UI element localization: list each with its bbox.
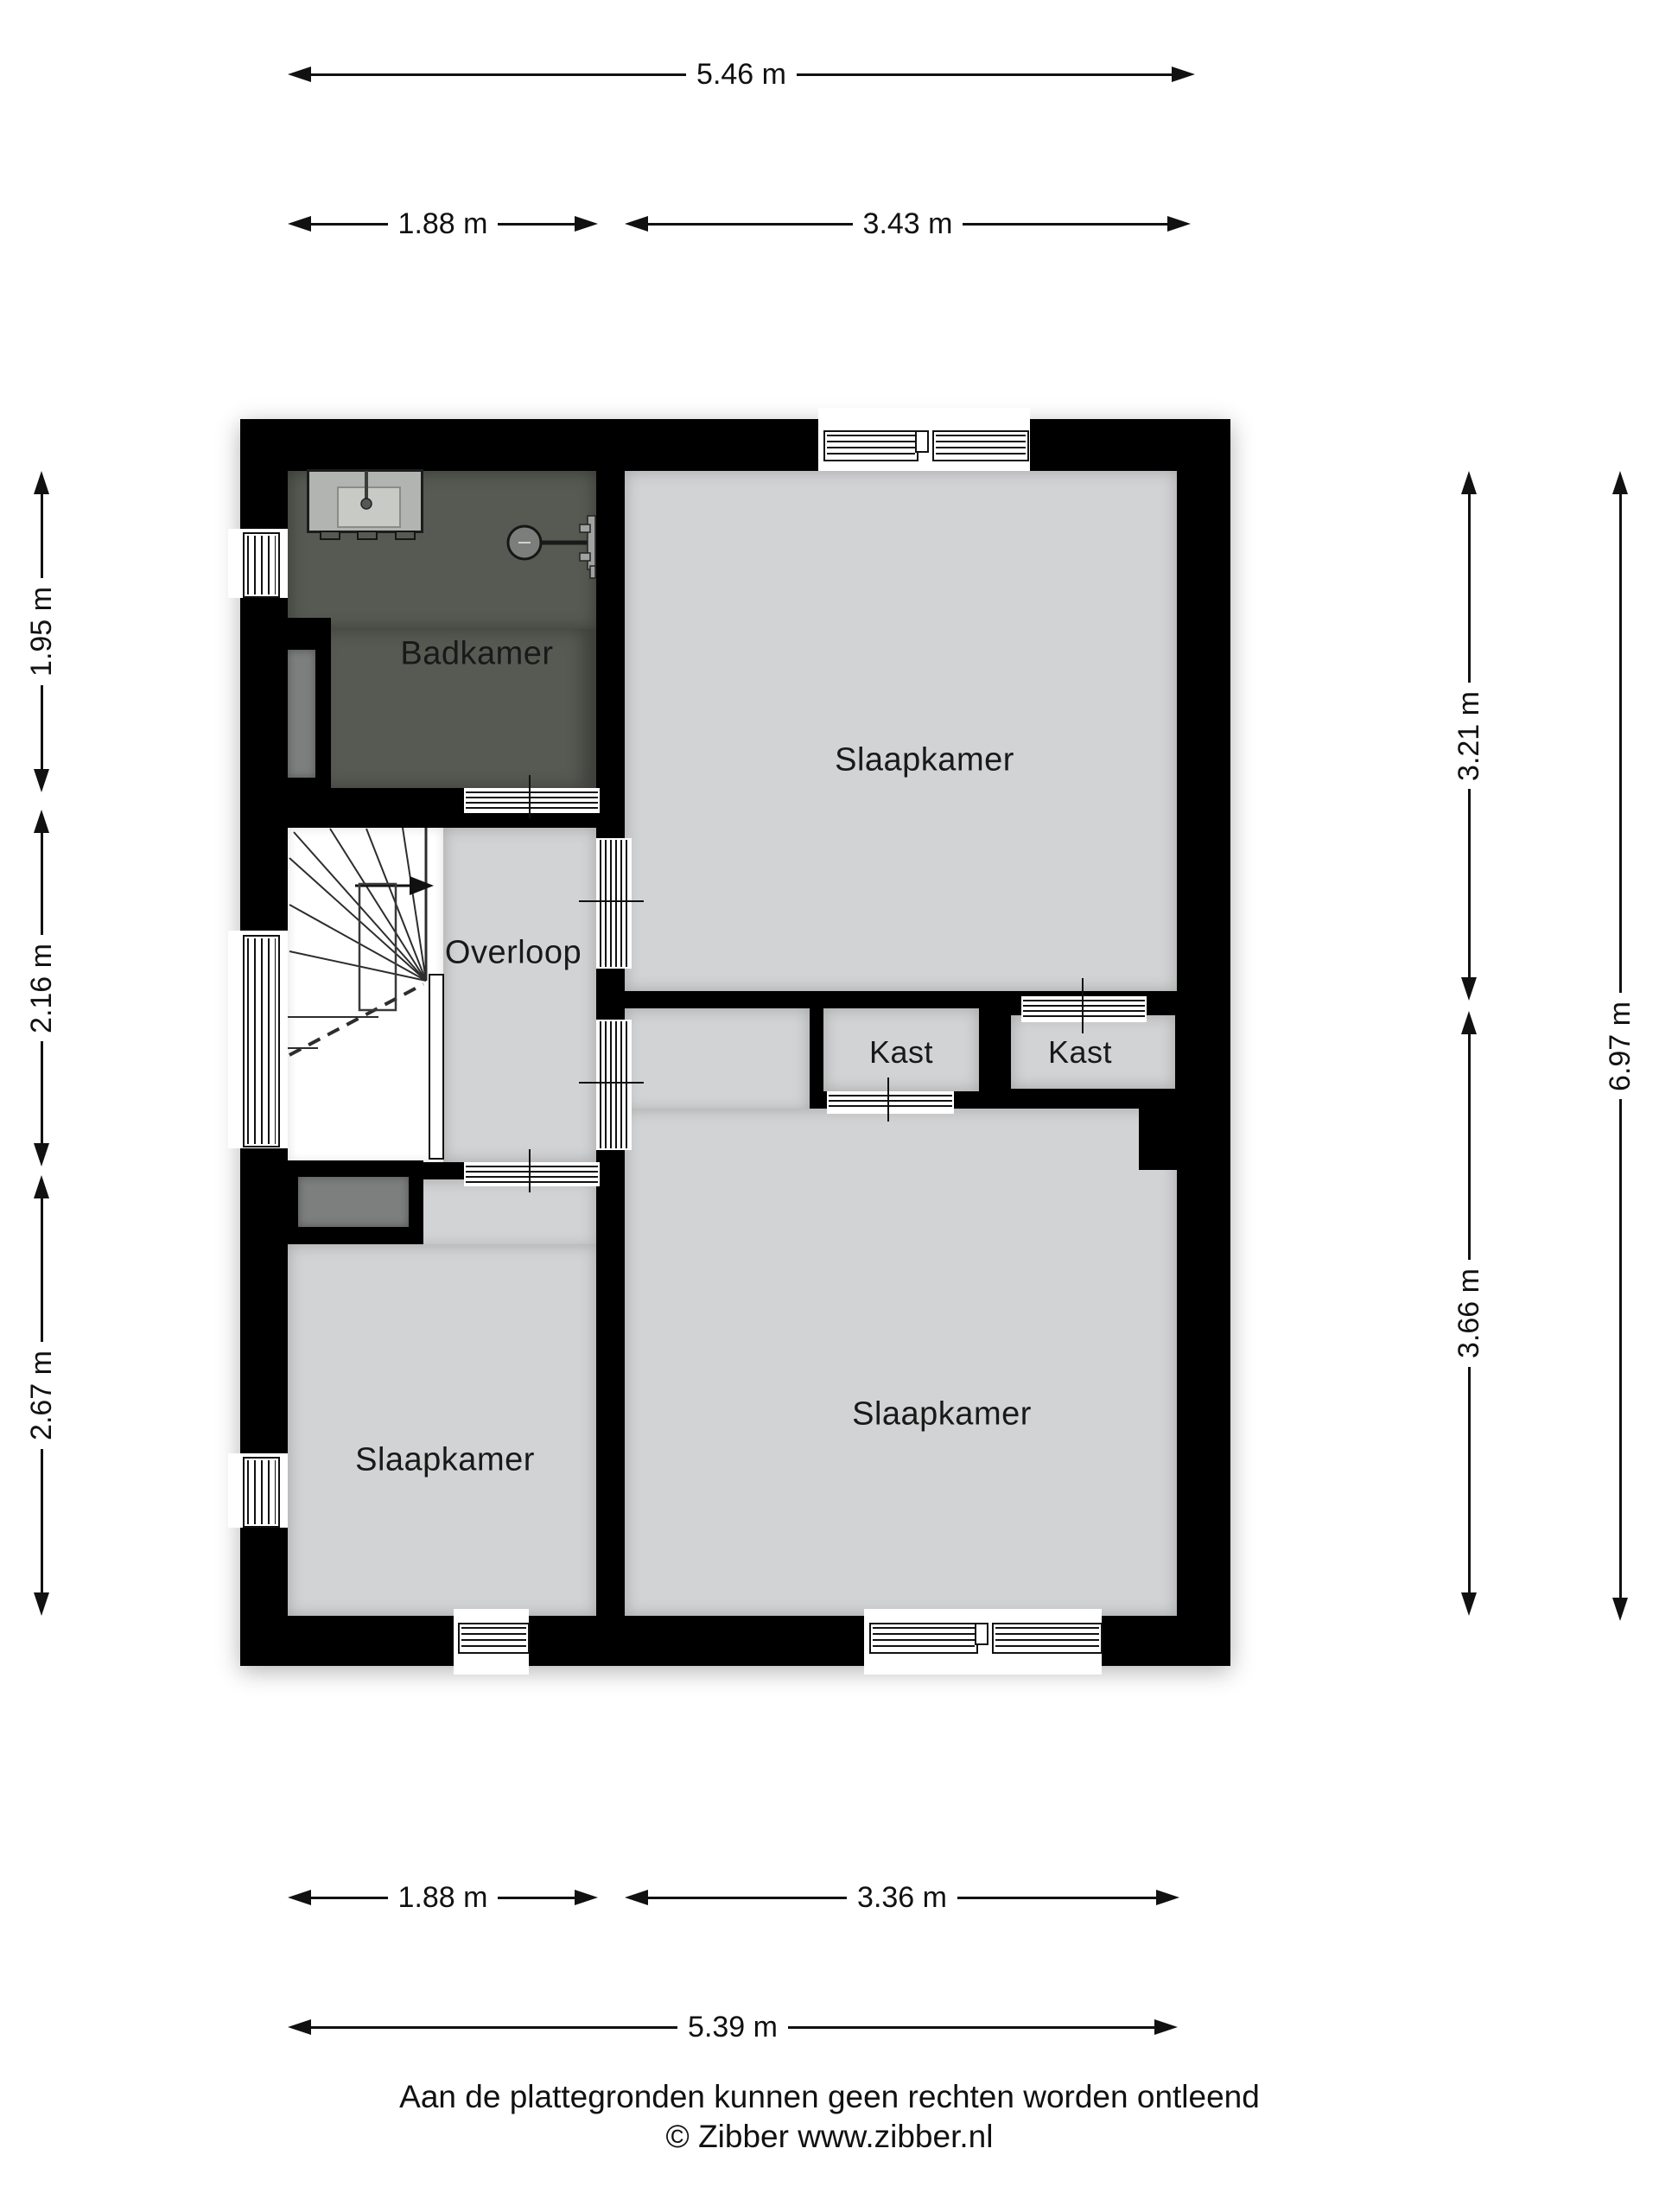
arrow-up-icon xyxy=(34,810,49,833)
room-label-overloop: Overloop xyxy=(445,935,582,972)
arrow-right-icon xyxy=(1167,216,1191,232)
dim-bottom-right: 3.36 m xyxy=(625,1880,1179,1915)
arrow-right-icon xyxy=(575,1890,598,1905)
dim-label: 5.46 m xyxy=(686,58,797,92)
arrow-up-icon xyxy=(34,471,49,494)
dim-label: 3.43 m xyxy=(853,207,963,241)
dim-top-total: 5.46 m xyxy=(288,57,1195,92)
arrow-up-icon xyxy=(1612,471,1628,494)
arrow-left-icon xyxy=(288,1890,311,1905)
dim-right-lower: 3.66 m xyxy=(1450,1011,1488,1616)
dim-label: 6.97 m xyxy=(1604,993,1637,1100)
dim-top-left: 1.88 m xyxy=(288,207,598,241)
arrow-up-icon xyxy=(1461,471,1477,494)
dim-label: 2.16 m xyxy=(25,935,59,1042)
dim-left-overloop: 2.16 m xyxy=(22,810,60,1166)
footer-credit: © Zibber www.zibber.nl xyxy=(60,2117,1599,2157)
shower-fixture xyxy=(508,516,595,578)
arrow-right-icon xyxy=(1154,2019,1178,2035)
floorplan-page: 5.46 m 1.88 m 3.43 m 1.95 m 2.16 m 2.67 … xyxy=(0,0,1659,2212)
room-label-slaapkamer-bottom-left: Slaapkamer xyxy=(355,1442,535,1479)
footer-disclaimer: Aan de plattegronden kunnen geen rechten… xyxy=(60,2077,1599,2117)
arrow-down-icon xyxy=(34,769,49,792)
arrow-left-icon xyxy=(288,67,311,82)
room-label-slaapkamer-top: Slaapkamer xyxy=(835,742,1014,779)
dim-label: 3.66 m xyxy=(1452,1260,1486,1367)
door-ticks xyxy=(530,775,1083,1192)
room-label-kast-right: Kast xyxy=(1048,1034,1112,1071)
dim-bottom-total: 5.39 m xyxy=(288,2010,1178,2044)
dim-right-upper: 3.21 m xyxy=(1450,471,1488,1001)
arrow-right-icon xyxy=(1172,67,1195,82)
arrow-down-icon xyxy=(34,1143,49,1166)
room-label-slaapkamer-bottom-right: Slaapkamer xyxy=(852,1396,1032,1433)
dim-label: 3.21 m xyxy=(1452,683,1486,790)
dim-label: 5.39 m xyxy=(677,2011,788,2044)
dim-left-slaapkamer: 2.67 m xyxy=(22,1175,60,1616)
room-label-badkamer: Badkamer xyxy=(400,636,553,673)
dim-label: 3.36 m xyxy=(847,1881,957,1915)
arrow-left-icon xyxy=(625,216,648,232)
arrow-right-icon xyxy=(1156,1890,1179,1905)
arrow-up-icon xyxy=(1461,1011,1477,1034)
sink-faucet xyxy=(321,471,415,539)
floorplan-canvas: Badkamer Slaapkamer Overloop Kast Kast S… xyxy=(240,419,1230,1666)
arrow-down-icon xyxy=(34,1592,49,1616)
arrow-down-icon xyxy=(1612,1598,1628,1621)
dim-left-badkamer: 1.95 m xyxy=(22,471,60,792)
stairs-direction-arrow xyxy=(355,876,434,1010)
dim-top-right: 3.43 m xyxy=(625,207,1191,241)
arrow-down-icon xyxy=(1461,1592,1477,1616)
arrow-up-icon xyxy=(34,1175,49,1198)
stairs xyxy=(288,828,426,1055)
arrow-left-icon xyxy=(288,2019,311,2035)
arrow-left-icon xyxy=(288,216,311,232)
footer: Aan de plattegronden kunnen geen rechten… xyxy=(60,2077,1599,2158)
dim-label: 2.67 m xyxy=(25,1342,59,1449)
dim-label: 1.88 m xyxy=(388,207,499,241)
room-label-kast-left: Kast xyxy=(869,1034,933,1071)
arrow-left-icon xyxy=(625,1890,648,1905)
dim-bottom-left: 1.88 m xyxy=(288,1880,598,1915)
dim-label: 1.95 m xyxy=(25,578,59,685)
dim-label: 1.88 m xyxy=(388,1881,499,1915)
arrow-right-icon xyxy=(575,216,598,232)
arrow-down-icon xyxy=(1461,977,1477,1001)
dim-right-total: 6.97 m xyxy=(1601,471,1639,1621)
